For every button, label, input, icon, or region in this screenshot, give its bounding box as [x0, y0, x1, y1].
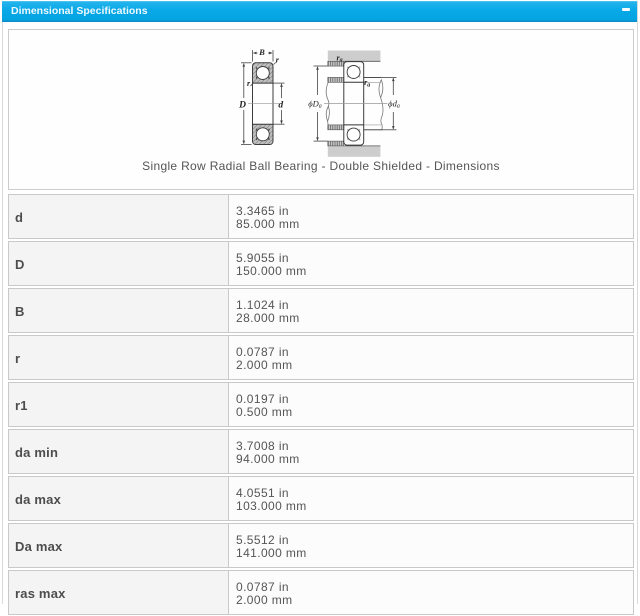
- svg-text:B: B: [258, 47, 265, 57]
- svg-text:d: d: [278, 101, 283, 111]
- svg-text:r: r: [276, 55, 280, 64]
- svg-text:D: D: [238, 100, 246, 110]
- svg-text:r: r: [247, 79, 251, 88]
- svg-text:ra: ra: [364, 78, 370, 88]
